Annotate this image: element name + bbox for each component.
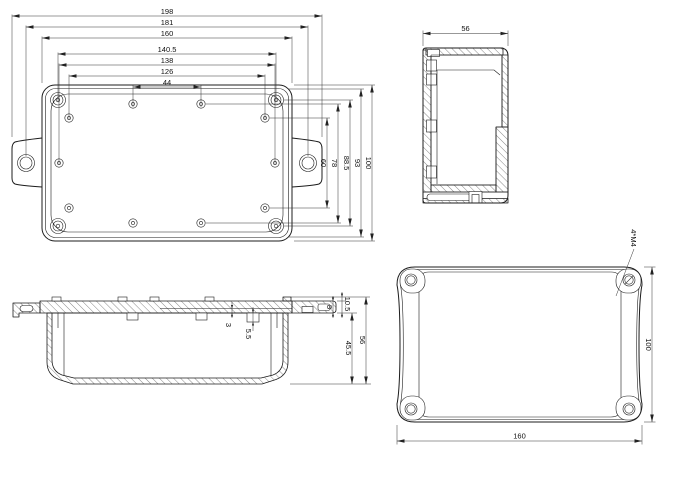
dim-label-5-5: 5.5 [244,329,253,339]
dim-label-88-5: 88.5 [342,156,351,171]
technical-drawing-canvas: 198 181 160 140.5 138 126 44 60 78 88.5 … [0,0,680,480]
lid-corner-screw-bosses [400,269,641,420]
screw-note-label: 4*M4 [629,229,638,247]
dim-label-93: 93 [353,159,362,167]
view-end-section: 56 [423,24,508,203]
side-section-top-tabs [52,297,214,301]
dim-label-198: 198 [161,7,174,16]
mounting-ear-left [12,138,42,187]
dim-label-100-plan: 100 [364,157,373,170]
drawing-sheet: 198 181 160 140.5 138 126 44 60 78 88.5 … [0,0,680,480]
plan-dimension-lines [12,16,372,241]
dim-label-160: 160 [161,29,174,38]
side-section-tub-walls [47,313,288,384]
dim-label-78: 78 [330,159,339,167]
dim-label-8: 8 [325,305,334,309]
dim-label-45-5: 45.5 [344,341,353,356]
side-section-inner-lines [58,313,277,376]
lid-inner-contour [401,270,640,420]
dim-label-56-end: 56 [461,24,469,33]
dim-label-60: 60 [319,159,328,167]
ear-slot-left [20,306,33,312]
ear-hole-right [300,155,317,172]
lid-face-panel [419,272,621,417]
mounting-ear-right [292,138,322,187]
dim-label-138: 138 [161,56,174,65]
plan-corner-bosses [51,93,284,234]
view-plan-base: 198 181 160 140.5 138 126 44 60 78 88.5 … [12,7,375,241]
lid-outer-contour [397,267,642,422]
view-side-section: 3 5.5 8 10.5 45.5 56 [13,292,371,384]
plan-body-outline [12,85,322,241]
dim-label-100-lid: 100 [644,338,653,351]
lid-flange-slot [427,194,471,201]
plan-screw-holes [55,100,279,227]
side-section-bosses [127,313,259,322]
dim-label-181: 181 [161,18,174,27]
dim-label-44: 44 [163,78,171,87]
end-section-dimension: 56 [423,24,508,46]
dim-label-56-side: 56 [358,336,367,344]
dim-label-10-5: 10.5 [343,297,352,312]
lid-screw-top-right [623,274,635,286]
plan-extension-lines [12,15,375,242]
view-lid-plan: 4*M4 100 160 [397,229,656,444]
ear-hole-left [18,155,35,172]
dim-label-160-lid: 160 [513,432,526,441]
dim-label-140-5: 140.5 [158,45,177,54]
dim-label-126: 126 [161,67,174,76]
dim-label-3: 3 [224,323,233,327]
